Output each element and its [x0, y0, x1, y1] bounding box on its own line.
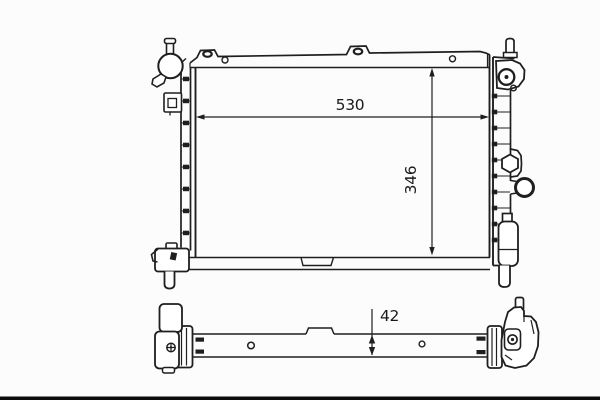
top-rail-outline: [190, 46, 490, 63]
cap-lever: [152, 74, 166, 87]
bracket-ring-center: [505, 75, 509, 79]
plan-hole-left: [248, 342, 255, 349]
right-tank: [492, 39, 534, 288]
plan-cap-screw: [167, 343, 175, 351]
plan-center-tab: [306, 328, 334, 334]
left-bottom-pipe: [165, 272, 175, 289]
dimension-height-arrow-bottom: [429, 247, 434, 256]
plan-dash: [477, 337, 486, 341]
cap-stem-top: [165, 39, 176, 44]
left-tank-fitting: [164, 93, 182, 116]
plan-left-end: [155, 304, 193, 373]
front-view: 530 346: [152, 39, 534, 289]
bottom-rail: [187, 258, 490, 270]
dimension-height-label: 346: [402, 166, 420, 195]
plan-body: [192, 328, 488, 357]
right-bottom-pipe: [499, 266, 510, 288]
left-tank-walls: [181, 62, 191, 251]
right-top-bracket: [496, 60, 525, 91]
lower-tank-section: [499, 214, 519, 267]
top-rail: [190, 46, 490, 68]
rail-hole-left: [222, 57, 228, 63]
dimension-depth-label: 42: [380, 307, 399, 325]
plan-right-collar: [488, 326, 503, 368]
dimension-width-arrow-right: [481, 114, 490, 119]
dimension-height-arrow-top: [429, 68, 434, 77]
plan-dash: [477, 350, 486, 354]
plan-hole-right: [419, 341, 425, 347]
plan-right-end: [488, 298, 539, 369]
mounting-pin: [504, 39, 518, 58]
dimension-depth-arrow-bottom: [369, 347, 375, 356]
dimension-width-arrow-left: [196, 114, 205, 119]
outlet-port-ring: [516, 179, 534, 197]
lower-section-body: [499, 222, 519, 267]
radiator-technical-drawing: 530 346: [0, 0, 600, 400]
dimension-depth: 42: [369, 307, 399, 356]
left-tank-foot: [152, 243, 190, 289]
dimension-depth-arrow-top: [369, 335, 375, 344]
left-tank: [152, 39, 191, 289]
bracket-slot-left: [203, 51, 211, 57]
left-tank-ticks: [183, 77, 189, 236]
outlet-port: [511, 179, 534, 197]
plan-cap-tab: [163, 368, 175, 374]
plan-view: 42: [155, 298, 539, 374]
plan-filler-tube: [160, 304, 183, 332]
dimension-width: 530: [196, 96, 489, 120]
bottom-border-bar: [0, 397, 600, 400]
drain-plug-hex: [502, 155, 518, 173]
plan-dash: [196, 350, 205, 354]
bracket-slot-center: [354, 49, 362, 55]
radiator-cap: [152, 39, 183, 88]
plan-dash: [196, 338, 205, 342]
drain-plug: [502, 149, 522, 177]
dimension-height: 346: [402, 68, 435, 256]
dimension-width-label: 530: [336, 96, 365, 114]
bottom-center-tab: [301, 258, 334, 266]
plan-bracket-ring-center: [511, 338, 514, 341]
rail-hole-right: [450, 56, 456, 62]
drawing-svg: 530 346: [0, 0, 600, 400]
foot-body: [155, 249, 189, 272]
